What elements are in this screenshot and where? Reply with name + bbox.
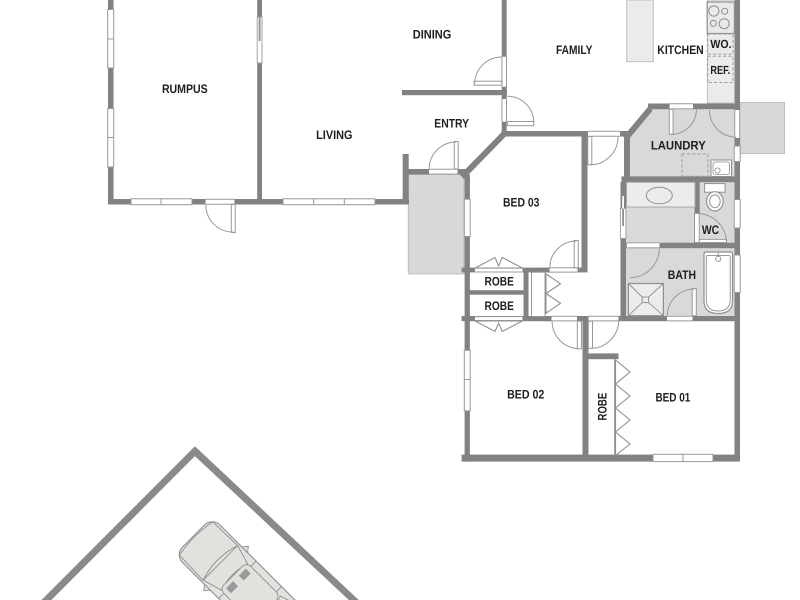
svg-text:BATH: BATH <box>668 268 696 282</box>
svg-text:LAUNDRY: LAUNDRY <box>651 138 707 152</box>
svg-text:BED 02: BED 02 <box>507 388 544 402</box>
svg-text:REF.: REF. <box>710 63 730 77</box>
svg-text:WO.: WO. <box>710 37 731 51</box>
svg-text:WC: WC <box>702 223 719 237</box>
svg-text:BED 03: BED 03 <box>503 196 539 210</box>
svg-text:RUMPUS: RUMPUS <box>162 82 208 96</box>
svg-text:FAMILY: FAMILY <box>556 43 593 57</box>
svg-text:ENTRY: ENTRY <box>434 117 469 131</box>
svg-text:ROBE: ROBE <box>485 274 514 288</box>
svg-text:ROBE: ROBE <box>485 299 514 313</box>
svg-text:KITCHEN: KITCHEN <box>657 43 703 57</box>
svg-text:ROBE: ROBE <box>596 393 610 421</box>
svg-text:LIVING: LIVING <box>316 128 352 142</box>
svg-text:BED 01: BED 01 <box>656 391 691 405</box>
svg-text:DINING: DINING <box>413 28 452 42</box>
